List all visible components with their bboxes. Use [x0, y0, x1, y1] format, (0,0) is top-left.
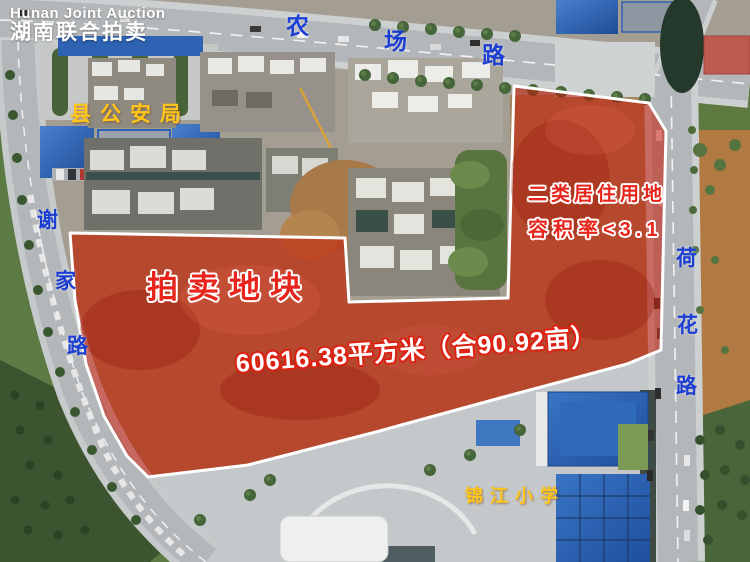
road-label-xiejia-char3: 路: [67, 336, 88, 357]
land-use-label: 二类居住用地: [528, 185, 666, 204]
road-label-nongchang-char3: 路: [482, 44, 505, 67]
road-label-xiejia-char2: 家: [55, 271, 76, 292]
road-label-hehua-char1: 荷: [676, 248, 697, 269]
plot-ratio-label: 容积率<3.1: [528, 220, 662, 240]
watermark: Hunan Joint Auction 湖南联合拍卖: [10, 6, 166, 43]
road-label-hehua-char2: 花: [677, 315, 698, 336]
road-label-nongchang-char1: 农: [286, 15, 309, 38]
road-label-hehua-char3: 路: [676, 376, 697, 397]
auction-plot-title: 拍卖地块: [147, 272, 311, 303]
road-label-nongchang-char2: 场: [384, 30, 407, 53]
police-bureau-label: 县公安局: [70, 104, 190, 125]
primary-school-label: 锦江小学: [465, 487, 565, 505]
aerial-photo: [0, 0, 750, 562]
watermark-zh: 湖南联合拍卖: [10, 22, 166, 43]
road-label-xiejia-char1: 谢: [37, 210, 58, 231]
watermark-en: Hunan Joint Auction: [10, 6, 166, 21]
auction-map: Hunan Joint Auction 湖南联合拍卖 农 场 路 谢 家 路 荷…: [0, 0, 750, 562]
